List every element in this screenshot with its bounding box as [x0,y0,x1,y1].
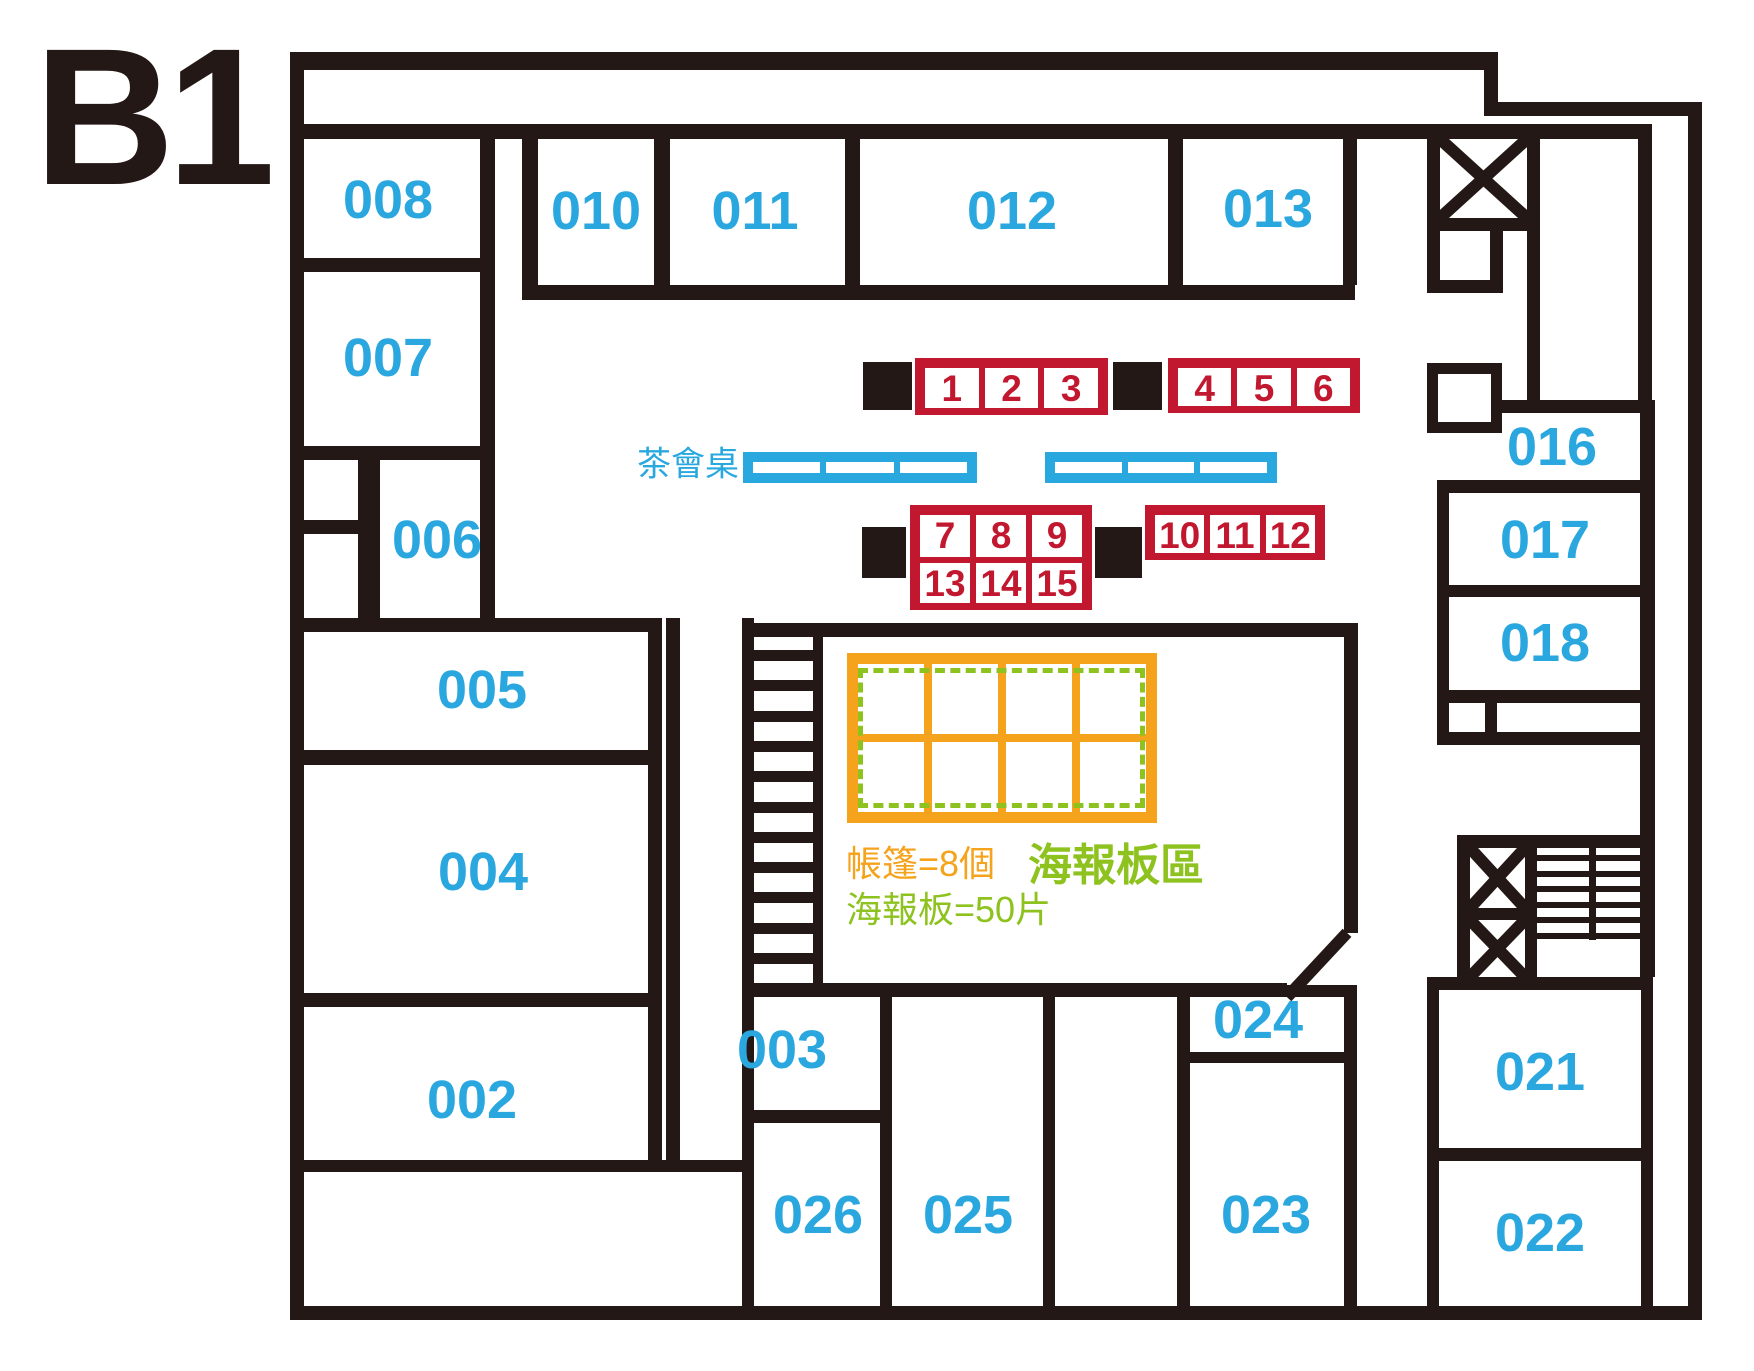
room018-bottom-wall [1437,690,1655,703]
outer-wall-right [1688,102,1702,1320]
elevator-x-icon-top-svg [1440,139,1527,218]
tea-table-right [1045,452,1277,483]
elevator-x-icon-top [1440,139,1527,218]
shaft-mid-wall [1527,139,1540,413]
booth-1: 1 [922,365,982,413]
room007-bottom-wall [302,446,495,460]
stairshaft-hatch-center [1589,848,1596,940]
right-block-bottom-wall [1437,732,1655,745]
room-label-012: 012 [967,180,1057,242]
room-label-025: 025 [923,1184,1013,1246]
room-label-022: 022 [1495,1202,1585,1264]
elevator-x-icon-bottom-2 [1470,920,1525,977]
room-label-024: 024 [1213,989,1303,1051]
outer-wall-step-horizontal [1484,102,1702,116]
tea-table-right-cell [1125,459,1198,476]
right-corridor-inner-wall [1640,400,1655,977]
booths-4-6: 456 [1168,358,1360,413]
divider-012-013 [1168,139,1183,285]
booth-9: 9 [1029,512,1085,560]
room-label-021: 021 [1495,1041,1585,1103]
room005-bottom-wall [302,750,662,765]
rooms2122-left-wall [1427,977,1439,1307]
room-label-026: 026 [773,1184,863,1246]
booth-15: 15 [1029,560,1085,608]
shaft-closet-box [1427,363,1502,433]
divider-024-023 [1177,1052,1357,1063]
booth-12: 12 [1263,512,1318,560]
floorplan-b1: B1 1234567891314151011120080070060050040… [0,0,1754,1371]
outer-wall-top [290,52,1498,70]
floor-title: B1 [34,30,267,206]
right-block-left-wall [1437,480,1449,745]
poster-room-left-wall [742,618,754,1320]
room016-top-wall [1495,400,1655,413]
poster-room-top-wall [742,623,1358,637]
booth-7: 7 [917,512,973,560]
block-square-4 [1095,527,1142,578]
stairs-top-left-step [754,832,813,843]
booth-6: 6 [1294,365,1353,413]
stairs1-right-wall [813,637,823,997]
block-square-3 [862,527,906,578]
stairs-top-left-step [754,862,813,873]
room-label-017: 017 [1500,509,1590,571]
shaft-right-wall [1638,124,1652,413]
corridor-top-wall [302,124,1650,139]
room-label-023: 023 [1221,1184,1311,1246]
poster-board-dashed-outline [858,668,1145,808]
stairs-top-left-step [754,680,813,691]
shaft-left-wall [1427,124,1440,293]
tea-table-right-cell [1197,459,1270,476]
room004-bottom-wall [302,993,661,1007]
room-label-003: 003 [737,1019,827,1081]
elevator-x-icon-bottom-1-svg [1470,848,1525,908]
stairs-top-left-step [754,711,813,722]
poster-area-label: 海報板區 [1028,829,1204,893]
stairs-bottom-right-step [1537,871,1640,877]
tea-table-left [743,452,977,483]
room-label-004: 004 [438,841,528,903]
room021-top-wall [1427,977,1653,990]
rooms2122-right-wall [1641,977,1653,1307]
room-label-018: 018 [1500,612,1590,674]
booth-2: 2 [982,365,1042,413]
toprooms-bottom-wall [522,285,1355,300]
room013-right-wall [1343,139,1357,285]
booths-10-12: 101112 [1145,505,1325,560]
room-label-002: 002 [427,1069,517,1131]
poster-count-label: 海報板=50片 [846,881,1051,933]
booth-4: 4 [1175,365,1234,413]
booth-8: 8 [973,512,1029,560]
smallrow-divider-wall [1485,703,1497,732]
room008-bottom-wall [302,258,480,272]
booth-14: 14 [973,560,1029,608]
stairs-top-left-step [754,650,813,661]
booth-3: 3 [1041,365,1101,413]
rooms2324-left-wall [1177,985,1190,1307]
booth-10: 10 [1152,512,1207,560]
stairs-top-left-step [754,802,813,813]
room008-right-wall [480,124,495,632]
tea-table-left-cell [897,459,970,476]
divider-011-012 [845,139,860,285]
hall-west-wall [666,618,680,1167]
stairs-bottom-right-step [1537,886,1640,892]
elevator-x-icon-bottom-1 [1470,848,1525,908]
tea-table-right-cell [1052,459,1125,476]
elevator-x-icon-bottom-2-svg [1470,920,1525,977]
poster-room-right-wall [1344,623,1358,933]
tea-table-left-cell [823,459,896,476]
room005-top-wall [302,618,662,632]
stairshaft-top-wall [1457,835,1653,848]
stairs-top-left-step [754,923,813,934]
stairs-top-left-step [754,741,813,752]
block-square-2 [1113,362,1162,410]
tea-table-left-cell [750,459,823,476]
room-label-010: 010 [551,180,641,242]
room017-bottom-wall [1437,585,1655,597]
room-label-007: 007 [343,327,433,389]
shaft-smallbox-bottom-wall [1427,280,1503,293]
stairs-bottom-right-step [1537,933,1640,939]
closet-column-wall [358,460,380,622]
stairs-top-left-step [754,892,813,903]
rooms2324-right-wall [1344,985,1357,1307]
closet-divider-wall [302,520,370,534]
room-label-011: 011 [711,180,798,242]
stairs-bottom-right-step [1537,902,1640,908]
room-label-006: 006 [392,509,482,571]
stairs-top-left-step [754,953,813,964]
room026-right-wall [880,997,892,1307]
divider-003-026 [742,1110,892,1123]
booth-5: 5 [1234,365,1293,413]
left-block-right-wall [648,618,662,1172]
room016-bottom-wall [1437,480,1655,493]
stairshaft-x-right-wall [1525,835,1537,980]
outer-wall-left [290,52,304,1320]
room-label-005: 005 [437,659,527,721]
tent-count-label: 帳篷=8個 [846,835,995,887]
room-label-008: 008 [343,169,433,231]
booths-7-15: 789131415 [910,505,1092,610]
stairs-bottom-right-step [1537,917,1640,923]
booth-11: 11 [1207,512,1262,560]
divider-021-022 [1437,1148,1653,1161]
room010-left-wall [522,124,538,300]
block-square-1 [863,362,912,410]
booths-1-3: 123 [915,358,1108,415]
room025-right-wall [1043,985,1055,1307]
room-label-016: 016 [1507,416,1597,478]
divider-010-011 [654,139,670,285]
tea-table-label: 茶會桌 [637,437,739,486]
outer-wall-bottom [290,1306,1702,1320]
stairs-top-left-step [754,771,813,782]
room025-top-wall [880,985,1055,997]
room002-bottom-wall [302,1160,753,1172]
room-label-013: 013 [1223,178,1313,240]
stairs-bottom-right-step [1537,855,1640,861]
booth-13: 13 [917,560,973,608]
